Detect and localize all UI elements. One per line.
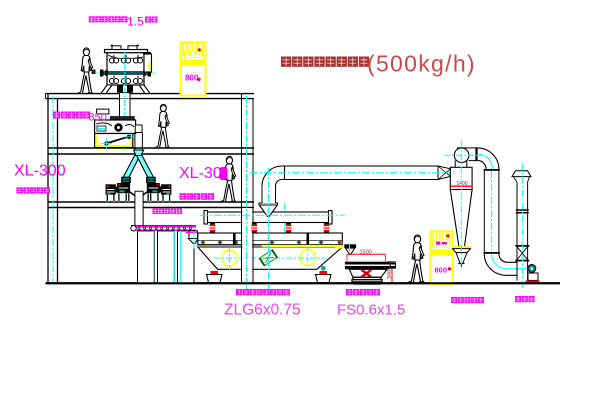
svg-text:1400: 1400	[457, 181, 468, 187]
svg-text:800: 800	[185, 74, 199, 83]
svg-text:XL-300: XL-300	[14, 163, 66, 180]
svg-text:FS0.6x1.5: FS0.6x1.5	[337, 302, 405, 319]
svg-text:ZLG6x0.75: ZLG6x0.75	[224, 302, 301, 319]
svg-text:800: 800	[435, 266, 448, 275]
svg-text:1.5: 1.5	[127, 14, 144, 28]
svg-text:1500: 1500	[360, 249, 372, 255]
svg-text:350: 350	[89, 112, 107, 124]
svg-text:(500kg/h): (500kg/h)	[367, 51, 476, 77]
svg-text:340: 340	[387, 270, 393, 279]
